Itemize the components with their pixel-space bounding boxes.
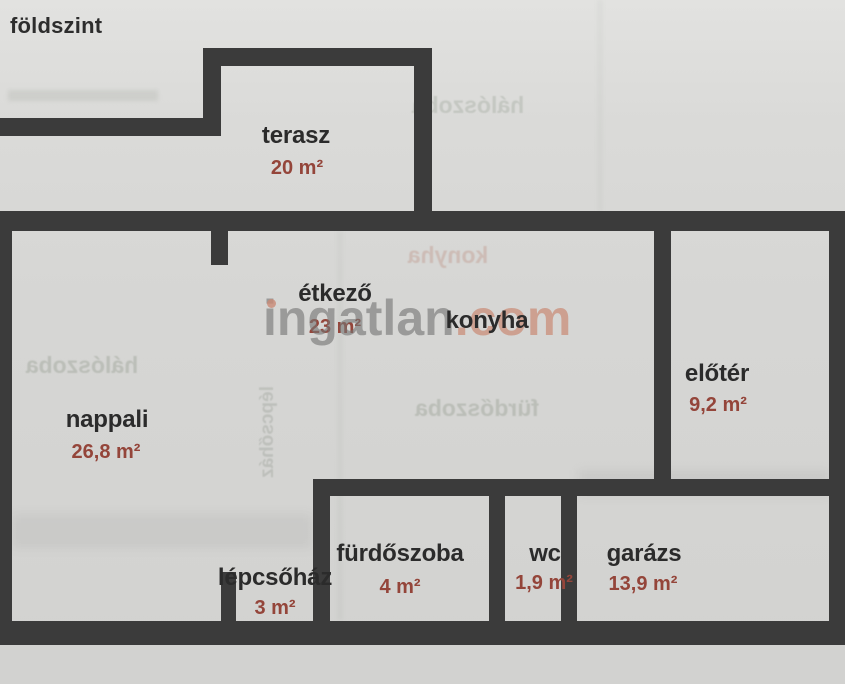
wall-top-left-horizontal [0,118,221,136]
room-label-garazs: garázs [607,540,682,568]
paper-shadow-nappali [12,514,312,548]
paper-crease-vertical-2 [598,0,602,211]
room-area-furdoszoba: 4 m² [379,576,420,599]
wall-terrace-right [414,48,432,213]
ghost-text-furdoszoba-center: fürdőszoba [415,395,539,422]
room-label-etkezo: étkező [298,280,372,308]
room-area-terasz: 20 m² [271,157,323,180]
floor-title: földszint [10,13,102,39]
room-area-wc: 1,9 m² [515,572,573,595]
room-label-furdoszoba: fürdőszoba [336,540,463,568]
wall-bottom-rooms-top [313,479,845,496]
room-area-garazs: 13,9 m² [609,573,678,596]
ghost-text-lepcsohaz-vertical: lépcsőház [257,386,279,478]
room-label-lepcsohaz: lépcsőház [218,564,332,592]
wall-furdoszoba-wc [489,496,505,639]
wall-furdoszoba-left [313,479,330,639]
room-label-wc: wc [529,540,561,568]
wall-main-horizontal [0,211,845,231]
room-area-nappali: 26,8 m² [72,441,141,464]
ghost-text-konyha: konyha [408,242,489,269]
wall-konyha-eloter [654,231,671,483]
paper-smudge-topleft [8,90,158,101]
room-label-terasz: terasz [262,122,330,150]
wall-left-exterior [0,211,12,639]
ghost-text-haloszoba-left: hálószoba [26,352,138,379]
room-label-eloter: előtér [685,360,749,388]
wall-terrace-top [203,48,432,66]
watermark-i-dot [267,299,276,308]
room-area-eloter: 9,2 m² [689,394,747,417]
floorplan-photo: hálószoba hálószoba fürdőszoba konyha lé… [0,0,845,684]
wall-right-exterior [829,211,845,639]
wall-wc-garazs [561,496,577,639]
room-label-konyha: konyha [446,307,529,335]
room-label-nappali: nappali [66,406,149,434]
wall-stub-nappali-etkezo [211,231,228,265]
wall-bottom-exterior [0,621,845,645]
room-area-lepcsohaz: 3 m² [254,597,295,620]
